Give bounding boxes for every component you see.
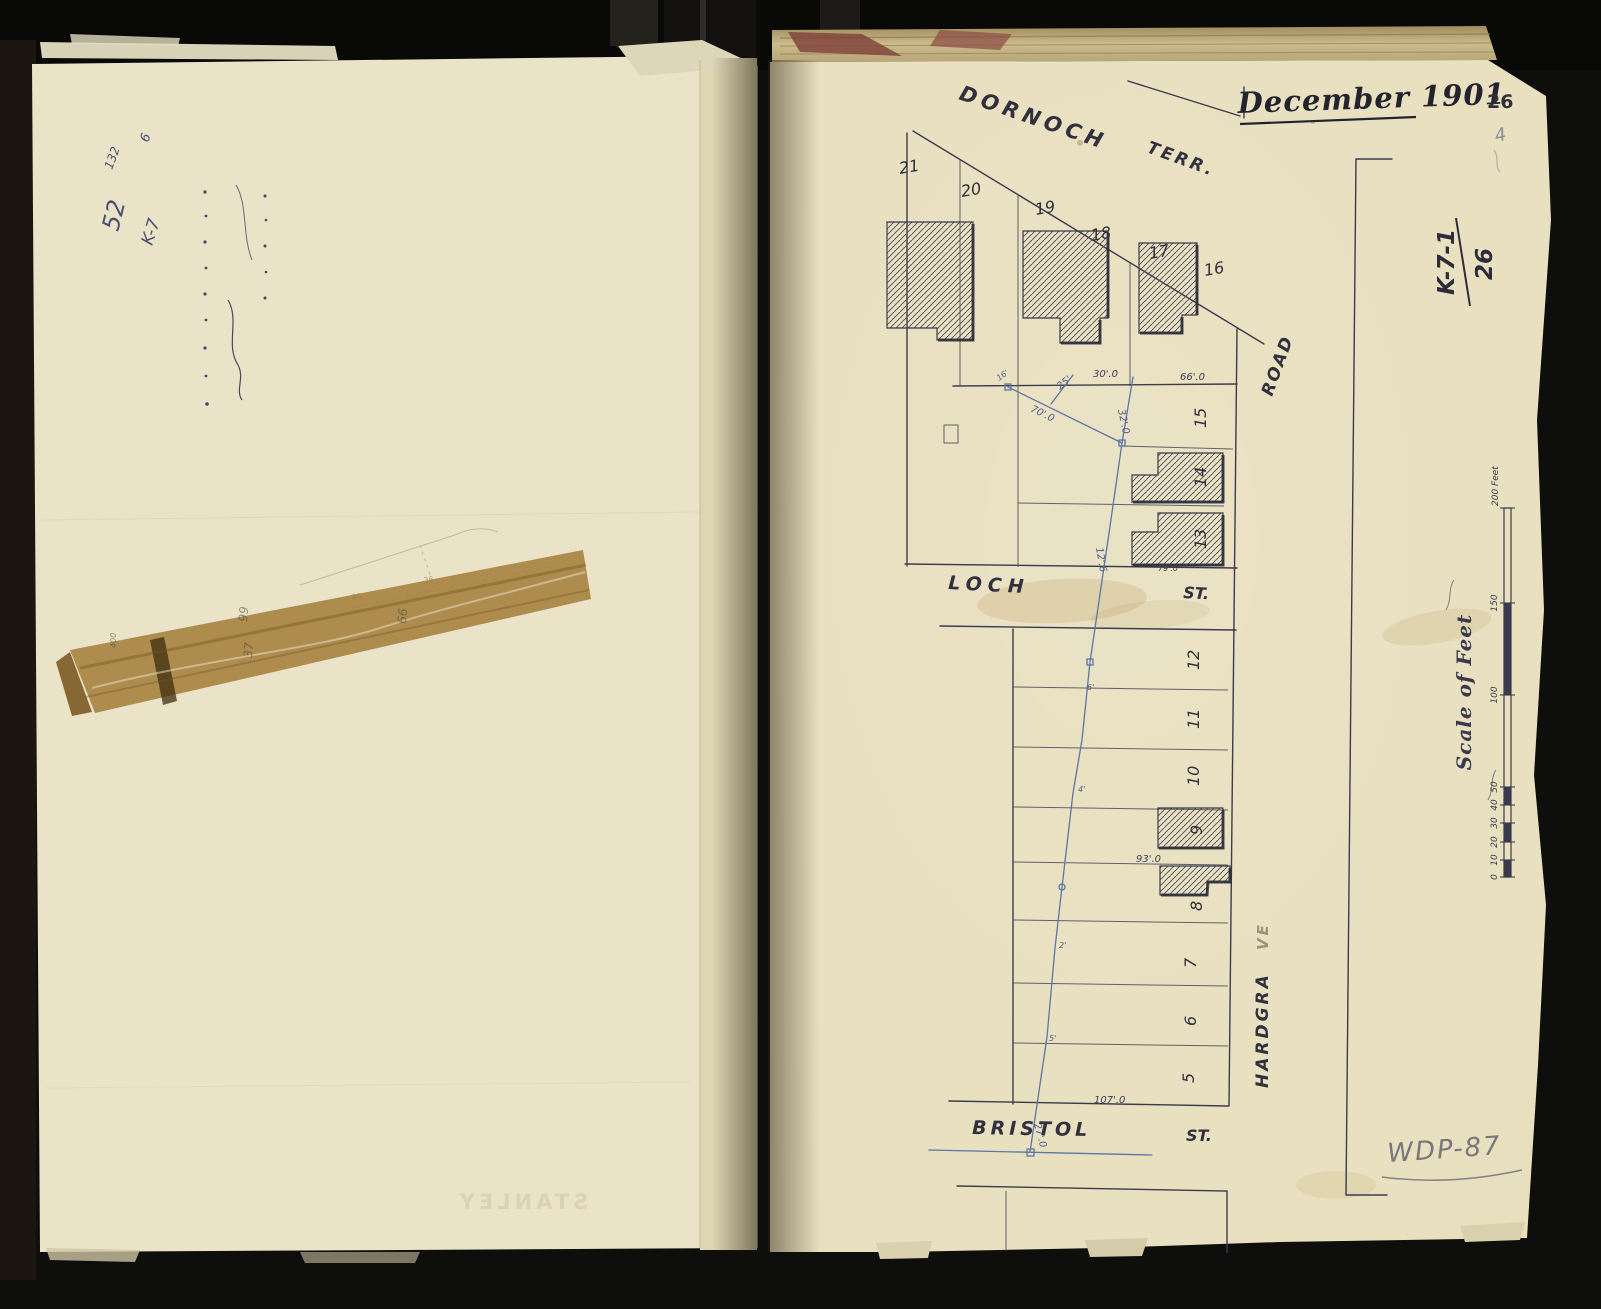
- scale-tick-label: 150: [1490, 594, 1500, 611]
- lot-number-18: 18: [1089, 223, 1112, 245]
- ref-code: K-7-1: [1434, 229, 1460, 295]
- measurement: 4': [1078, 785, 1085, 794]
- tape-ghost-number: 400: [109, 633, 118, 648]
- scale-title: Scale of Feet: [1452, 614, 1476, 771]
- lot-number-11: 11: [1184, 709, 1203, 729]
- measurement: 5': [1049, 1034, 1056, 1043]
- measurement: 93'.0: [1136, 854, 1161, 865]
- tape-ghost-number: 37: [241, 641, 256, 658]
- scale-tick-label: 40: [1490, 799, 1500, 811]
- right-page: 30'.0 66'.0 70'.0 25' 32'.0 12'.6 79'.0 …: [770, 26, 1551, 1252]
- scale-tick-label: 100: [1490, 686, 1500, 703]
- scale-tick-label: 20: [1490, 836, 1500, 848]
- spine-strip: [610, 0, 658, 46]
- measurement: 2': [1059, 941, 1066, 950]
- building-lot21: [887, 222, 973, 340]
- spine-strip-right: [820, 0, 860, 34]
- measurement: 107'.0: [1094, 1095, 1125, 1106]
- lot-number-9: 9: [1187, 825, 1206, 835]
- lot-number-19: 19: [1033, 197, 1056, 219]
- bleedthrough-text: STANLEY: [456, 1190, 589, 1214]
- measurement: 6': [1087, 683, 1094, 692]
- tape-ghost-number: 99: [236, 606, 251, 622]
- measurement: 66'.0: [1180, 372, 1205, 383]
- lot-number-8: 8: [1187, 901, 1206, 911]
- lot-number-7: 7: [1181, 957, 1200, 968]
- scale-tick-label: 10: [1490, 854, 1500, 866]
- scanned-book-spread: 132 52 K-7 6 30 36: [0, 0, 1601, 1309]
- gutter-shadow-right: [768, 60, 820, 1252]
- tape-ghost-number: 66: [395, 607, 410, 624]
- measurement: 30'.0: [1093, 369, 1118, 380]
- scale-tick-label: 0: [1490, 874, 1500, 880]
- lot-number-5: 5: [1179, 1073, 1198, 1083]
- lot-number-17: 17: [1147, 241, 1171, 263]
- scan-canvas: 132 52 K-7 6 30 36: [0, 0, 1601, 1309]
- scale-tick-label: 50: [1490, 781, 1500, 793]
- lot-number-13: 13: [1191, 529, 1210, 549]
- lot-number-21: 21: [897, 156, 920, 178]
- page-edges-stack: [772, 26, 1497, 62]
- street-label-hardgrave-pencil: VE: [1254, 922, 1272, 950]
- measurement: 79'.0: [1158, 564, 1178, 573]
- page-number: 26: [1487, 91, 1513, 113]
- lot-number-16: 16: [1202, 258, 1225, 280]
- scale-top-label: 200 Feet: [1491, 466, 1501, 506]
- street-label-bristol-st: ST.: [1186, 1126, 1212, 1145]
- book-cover-left-edge: [0, 40, 36, 1280]
- street-label-loch-st: ST.: [1183, 583, 1210, 603]
- lot-number-6: 6: [1181, 1016, 1200, 1026]
- ref-page: 26: [1472, 248, 1498, 280]
- lot-number-15: 15: [1191, 408, 1210, 428]
- scale-tick-label: 30: [1490, 817, 1500, 829]
- street-label-loch: LOCH: [948, 572, 1030, 598]
- street-label-hardgrave: HARDGRA: [1253, 972, 1273, 1088]
- street-label-bristol: BRISTOL: [972, 1117, 1091, 1141]
- lot-number-20: 20: [959, 179, 982, 201]
- left-page: 132 52 K-7 6 30 36: [32, 34, 758, 1252]
- gutter-shadow-left: [712, 58, 758, 1250]
- lot-number-12: 12: [1184, 650, 1203, 670]
- lot-number-10: 10: [1184, 766, 1203, 786]
- lot-number-14: 14: [1191, 467, 1210, 487]
